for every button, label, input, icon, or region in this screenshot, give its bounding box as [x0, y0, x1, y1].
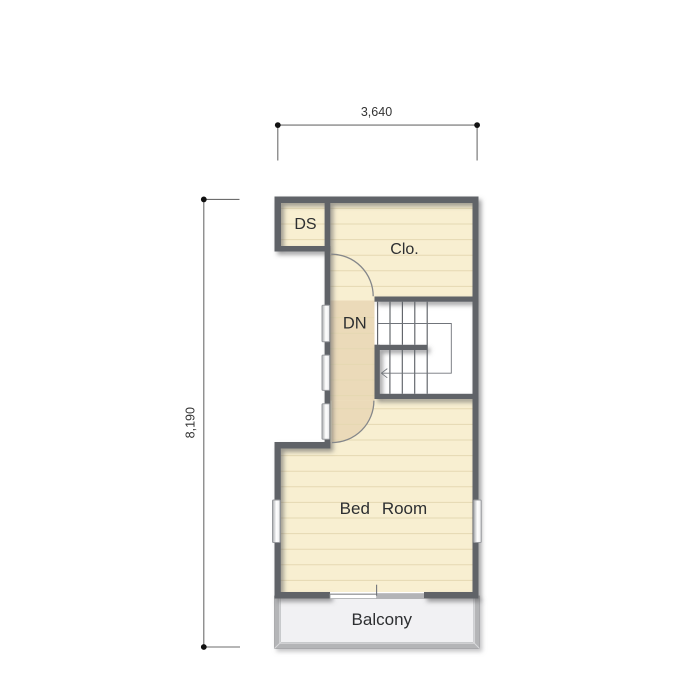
svg-text:DS: DS — [294, 216, 316, 233]
svg-text:Balcony: Balcony — [352, 610, 413, 629]
svg-text:Room: Room — [382, 499, 427, 518]
svg-text:Clo.: Clo. — [390, 241, 418, 258]
svg-text:Bed: Bed — [340, 499, 370, 518]
svg-text:3,640: 3,640 — [361, 105, 392, 119]
svg-text:DN: DN — [343, 315, 367, 333]
svg-text:8,190: 8,190 — [184, 407, 198, 438]
